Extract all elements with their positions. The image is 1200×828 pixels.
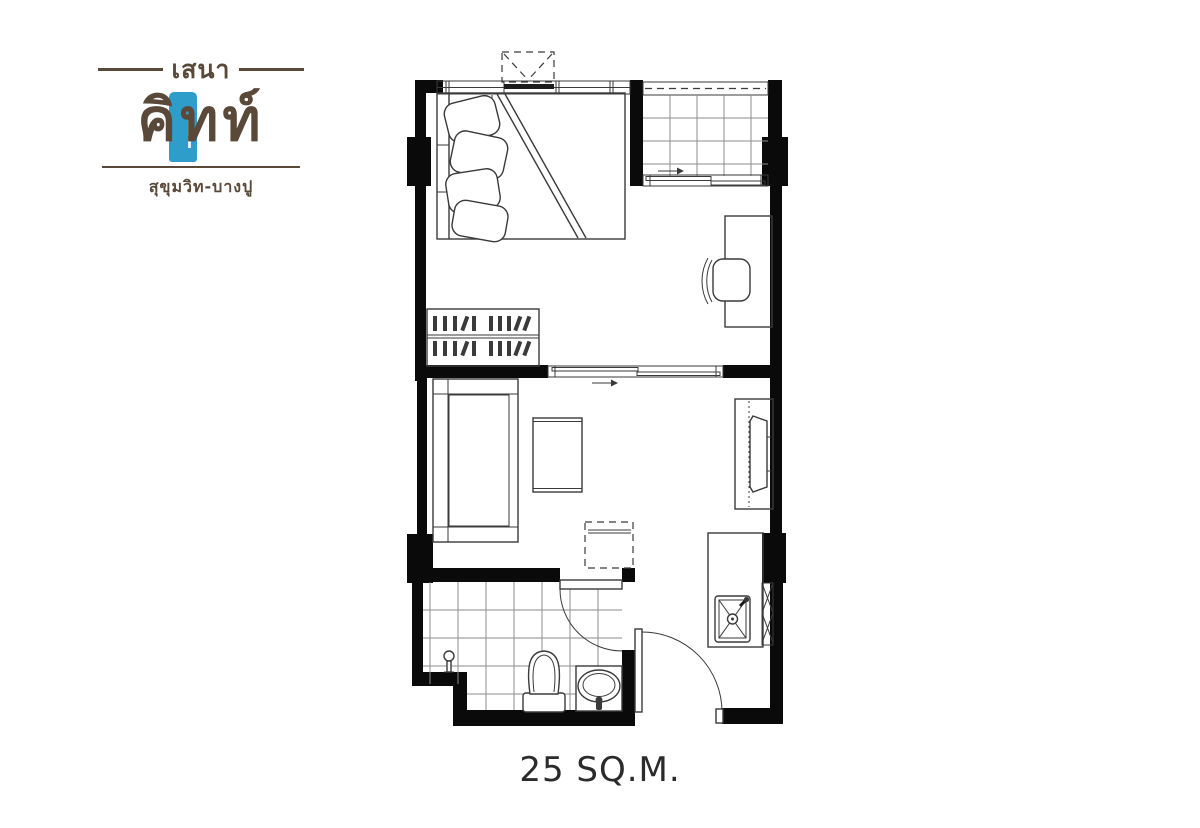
bathroom-door xyxy=(560,580,622,651)
kitchen-counter xyxy=(708,533,763,647)
balcony xyxy=(643,82,768,186)
floor-plan-drawing xyxy=(0,0,1200,828)
bedroom-window xyxy=(437,81,630,94)
workspace xyxy=(702,216,772,327)
floor-plan-page: เสนา คิทท์ สุขุมวิท-บางปู xyxy=(0,0,1200,828)
tv xyxy=(750,416,767,492)
air-conditioner-unit xyxy=(502,52,554,82)
slide-arrow xyxy=(658,168,684,175)
faucet-icon xyxy=(596,697,603,711)
shower-fixture xyxy=(444,651,454,672)
hangers xyxy=(433,316,511,356)
dashed-optional-table xyxy=(585,522,633,568)
toilet xyxy=(523,651,565,712)
slide-arrow xyxy=(592,380,618,387)
sofa xyxy=(433,379,518,542)
desk-chair xyxy=(702,258,750,304)
kitchenette xyxy=(708,533,773,647)
pillows xyxy=(442,93,510,243)
kitchen-sink xyxy=(715,596,750,642)
entrance-door xyxy=(635,629,723,723)
bathroom xyxy=(418,578,624,714)
living-area xyxy=(433,379,773,568)
double-bed xyxy=(437,93,625,243)
balcony-sliding-window xyxy=(643,168,768,187)
entrance xyxy=(635,629,723,723)
balcony-floor-tiles xyxy=(643,95,768,176)
tv-console xyxy=(735,399,773,509)
bedroom xyxy=(427,52,630,366)
wardrobe xyxy=(427,309,539,366)
partition-sliding-door xyxy=(548,366,723,387)
coffee-table xyxy=(533,418,582,492)
washbasin xyxy=(576,666,622,711)
area-label: 25 SQ.M. xyxy=(450,750,750,790)
faucet-icon xyxy=(740,597,749,606)
